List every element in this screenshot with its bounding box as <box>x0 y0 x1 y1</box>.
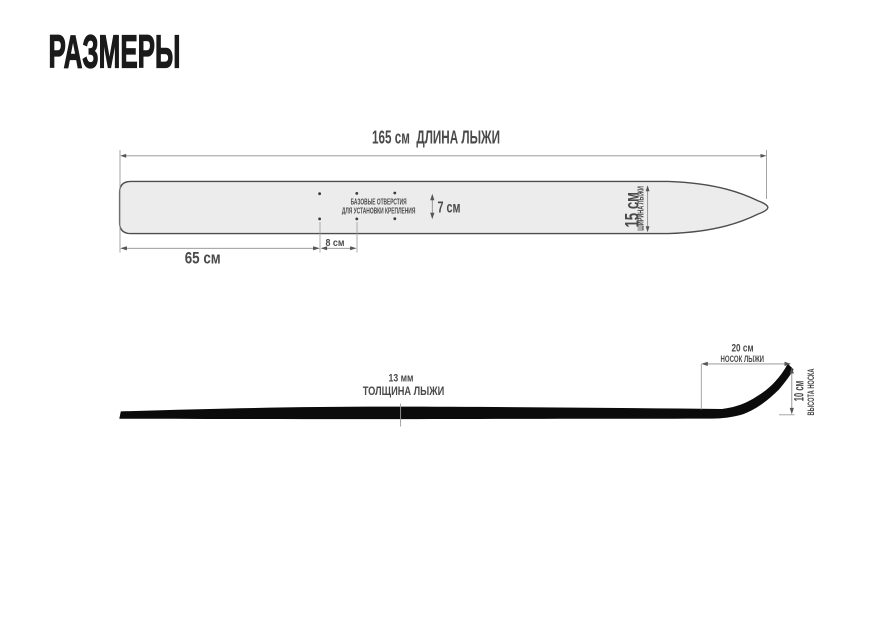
svg-text:ДЛЯ УСТАНОВКИ КРЕПЛЕНИЯ: ДЛЯ УСТАНОВКИ КРЕПЛЕНИЯ <box>342 206 416 215</box>
svg-text:БАЗОВЫЕ ОТВЕРСТИЯ: БАЗОВЫЕ ОТВЕРСТИЯ <box>351 197 407 206</box>
svg-text:13 мм: 13 мм <box>389 372 414 384</box>
svg-text:ВЫСОТА НОСКА: ВЫСОТА НОСКА <box>806 368 816 415</box>
svg-text:65 см: 65 см <box>185 250 221 268</box>
svg-text:ШИРИНА ЛЫЖИ: ШИРИНА ЛЫЖИ <box>636 186 645 231</box>
svg-text:20 см: 20 см <box>732 342 754 354</box>
svg-text:РАЗМЕРЫ: РАЗМЕРЫ <box>49 26 181 78</box>
svg-text:165 см ДЛИНА ЛЫЖИ: 165 см ДЛИНА ЛЫЖИ <box>372 128 500 148</box>
svg-text:ТОЛЩИНА ЛЫЖИ: ТОЛЩИНА ЛЫЖИ <box>363 384 445 398</box>
svg-text:10 см: 10 см <box>791 381 806 402</box>
svg-text:7 см: 7 см <box>438 200 461 217</box>
svg-text:8 см: 8 см <box>326 237 345 249</box>
svg-text:НОСОК ЛЫЖИ: НОСОК ЛЫЖИ <box>721 354 765 364</box>
